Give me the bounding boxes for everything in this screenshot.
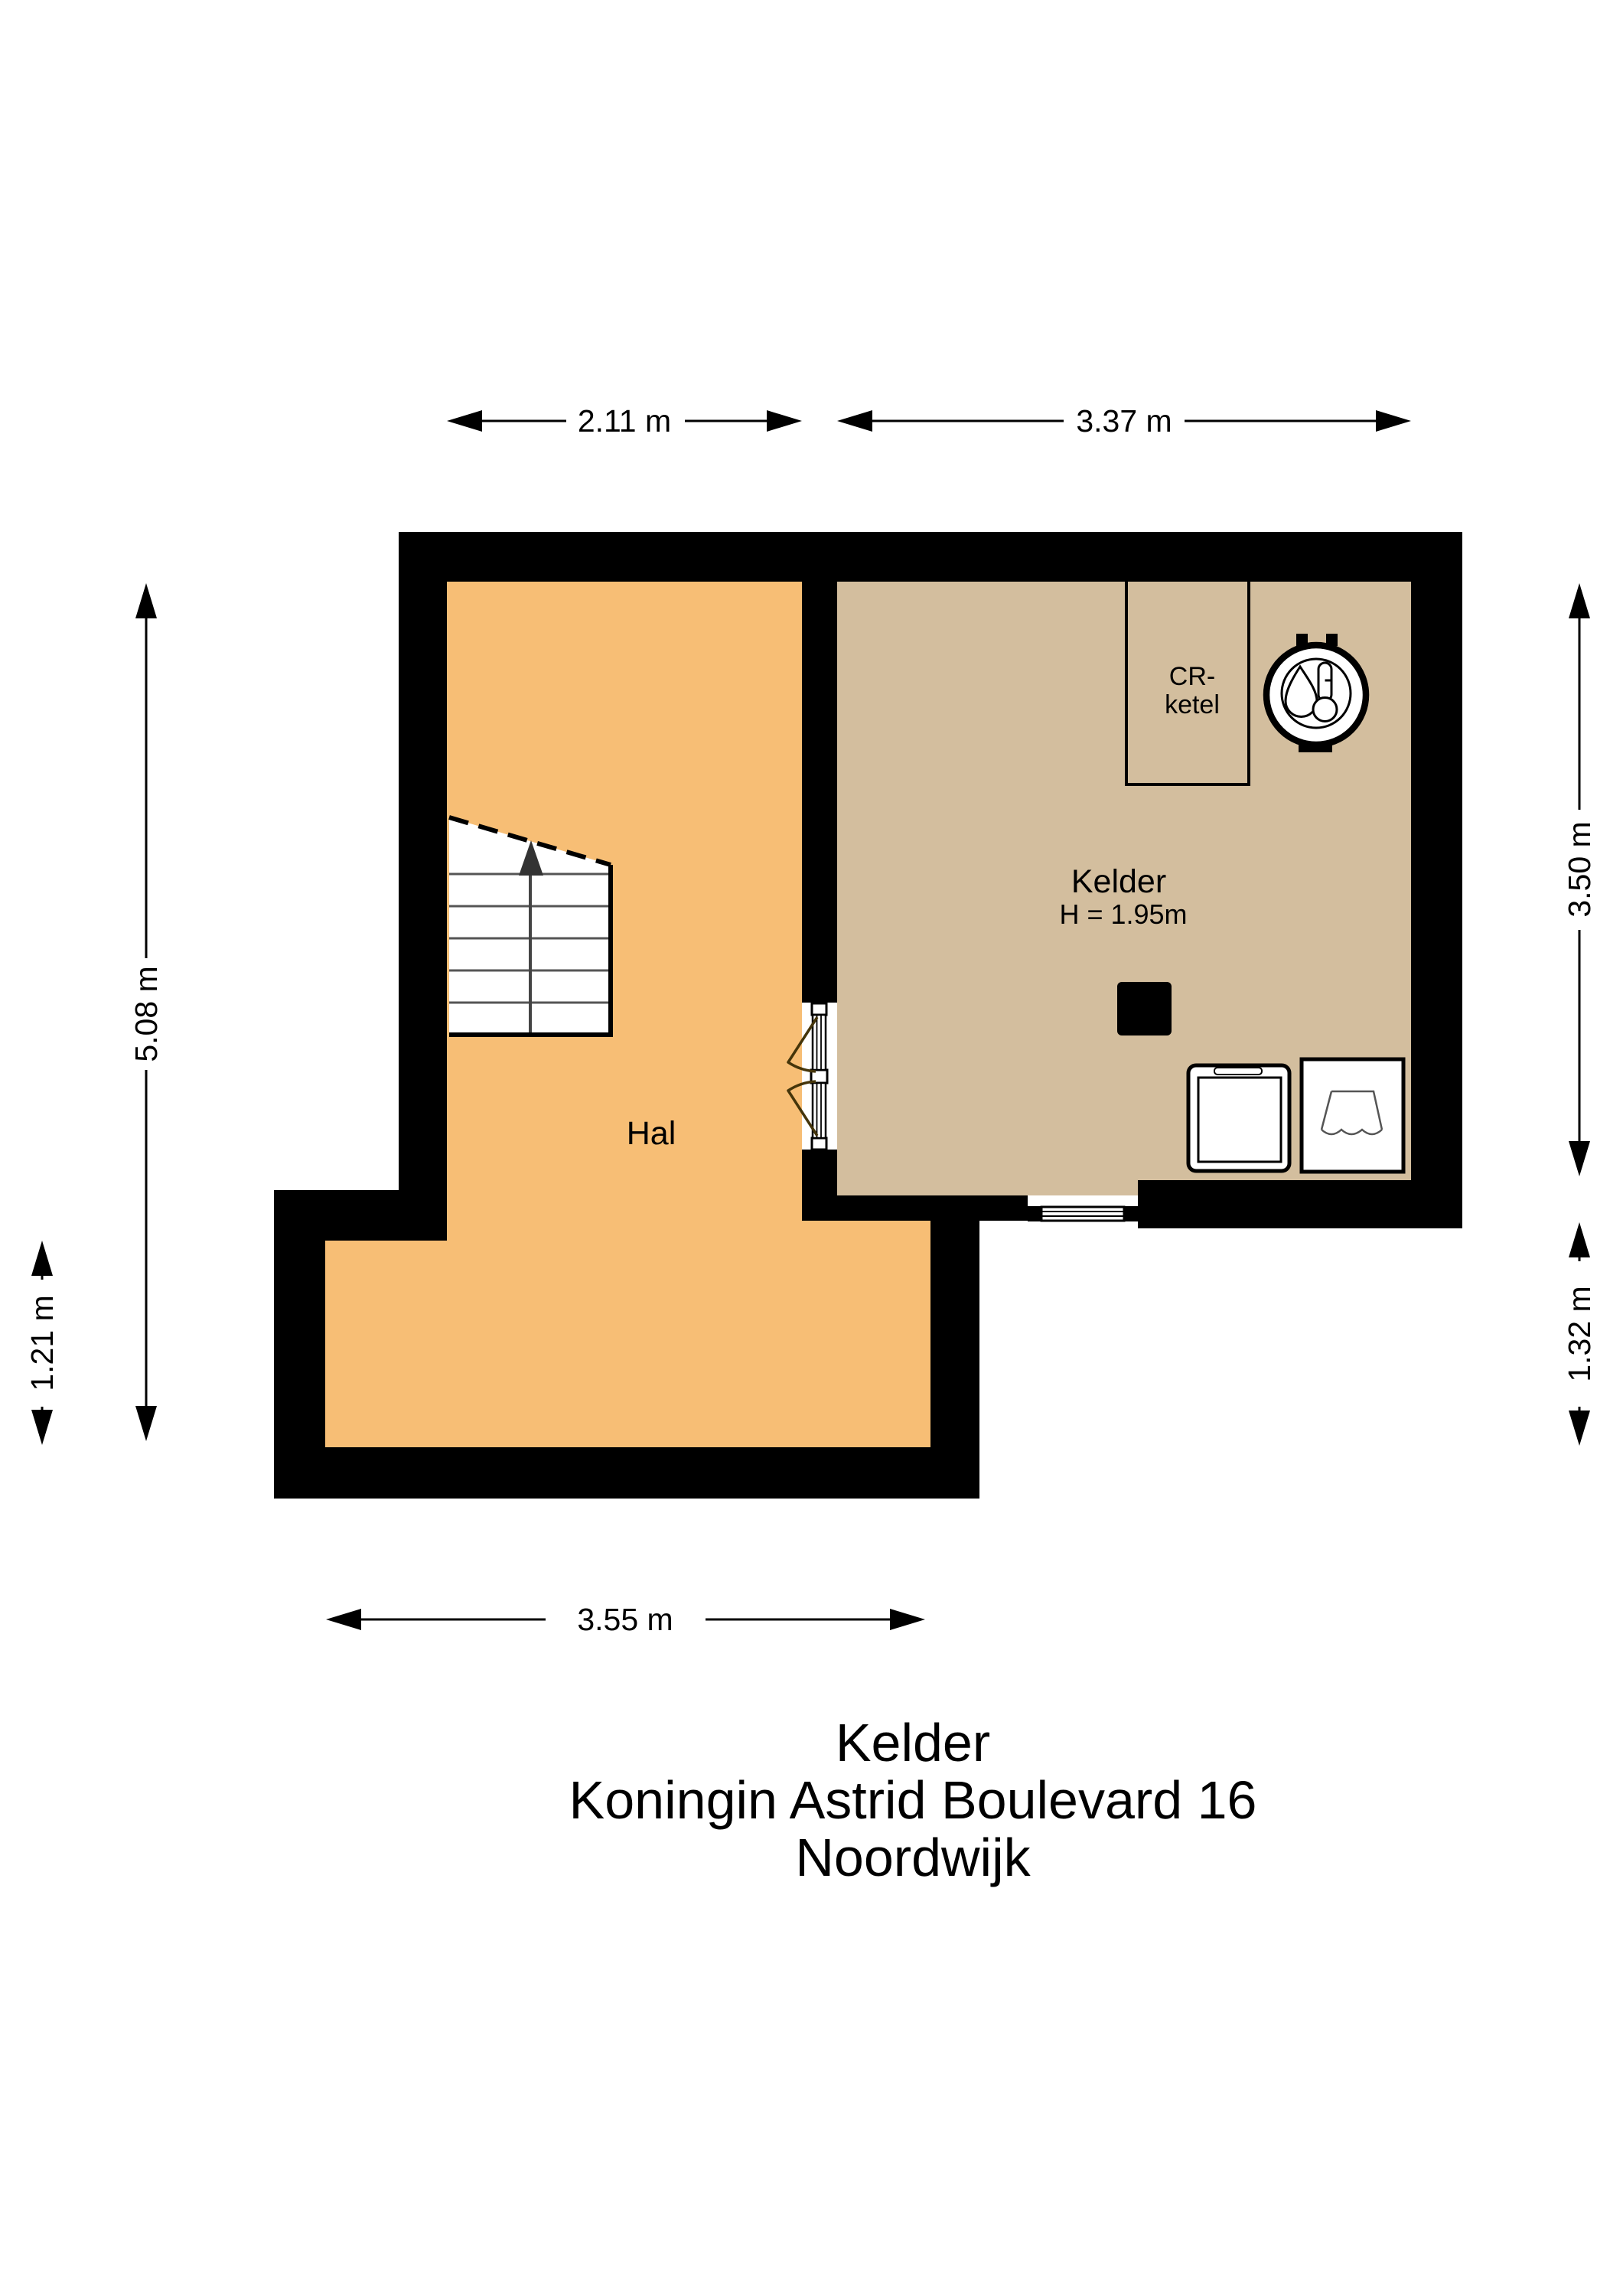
svg-text:3.55 m: 3.55 m — [577, 1602, 673, 1637]
svg-text:Koningin Astrid Boulevard 16: Koningin Astrid Boulevard 16 — [569, 1770, 1257, 1830]
svg-text:Hal: Hal — [627, 1115, 676, 1152]
svg-text:Kelder: Kelder — [1071, 863, 1166, 900]
svg-text:H = 1.95m: H = 1.95m — [1059, 899, 1187, 930]
svg-text:1.21 m: 1.21 m — [24, 1295, 60, 1391]
svg-text:ketel: ketel — [1165, 690, 1220, 719]
svg-text:3.50 m: 3.50 m — [1562, 821, 1597, 917]
svg-text:CR-: CR- — [1169, 662, 1215, 691]
svg-text:Kelder: Kelder — [836, 1713, 990, 1773]
svg-text:1.32 m: 1.32 m — [1562, 1286, 1597, 1381]
svg-text:2.11 m: 2.11 m — [578, 403, 671, 439]
svg-text:5.08 m: 5.08 m — [129, 966, 164, 1062]
svg-text:Noordwijk: Noordwijk — [795, 1828, 1031, 1887]
svg-text:3.37 m: 3.37 m — [1076, 403, 1172, 439]
